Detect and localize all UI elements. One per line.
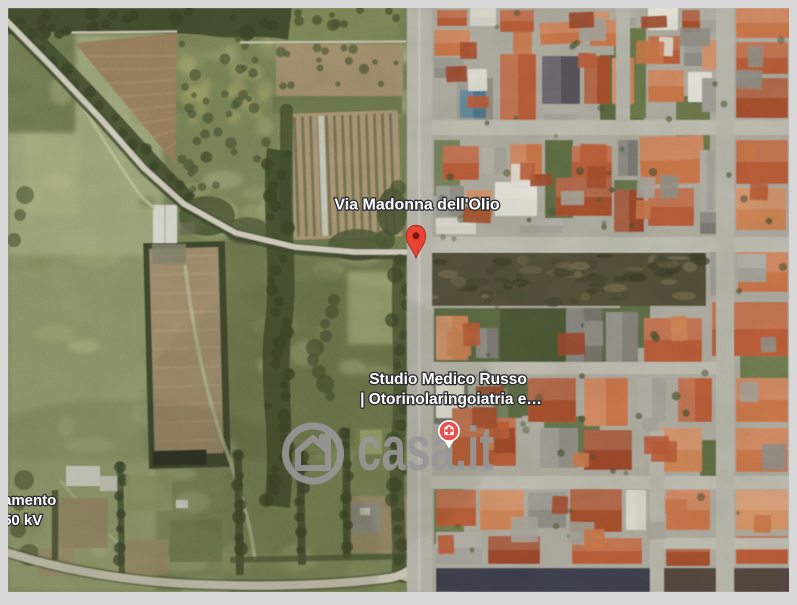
svg-text:amento: amento xyxy=(3,492,56,509)
svg-text:Studio Medico Russo: Studio Medico Russo xyxy=(369,371,527,388)
svg-text:Via Madonna dell'Olio: Via Madonna dell'Olio xyxy=(334,197,500,214)
svg-text:50 kV: 50 kV xyxy=(3,512,42,529)
svg-text:| Otorinolaringoiatria e…: | Otorinolaringoiatria e… xyxy=(360,391,542,408)
svg-text:casa.it: casa.it xyxy=(357,415,494,484)
